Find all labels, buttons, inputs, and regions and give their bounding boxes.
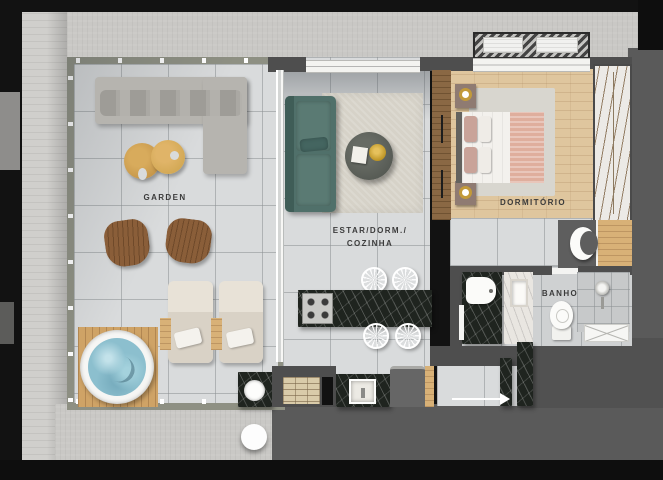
living-window-sill: [306, 60, 420, 73]
garden-glass-partition: [276, 70, 284, 362]
ac-unit: [483, 37, 523, 53]
bed-pillow: [464, 116, 477, 142]
window-mullions-left: [68, 66, 73, 402]
entry-arrow: [452, 398, 504, 400]
bed-pillow: [464, 147, 477, 173]
book: [351, 146, 368, 164]
cabinet-side-panel: [425, 366, 434, 407]
table-lamp: [459, 88, 472, 101]
wall-segment: [268, 57, 306, 72]
door-handle: [441, 170, 443, 198]
bar-stool: [395, 323, 421, 349]
exterior-edge-patch: [0, 302, 14, 344]
bathroom-label: BANHO: [530, 289, 590, 298]
ac-unit: [536, 37, 578, 53]
bedroom-label: DORMITÓRIO: [478, 198, 588, 207]
shower-head: [595, 281, 609, 295]
oven-slot: [322, 377, 333, 405]
entry-arrow-head: [500, 393, 510, 405]
dark-zone-bottom: [272, 404, 663, 462]
cooktop: [302, 293, 333, 324]
kitchen-sink: [349, 379, 376, 404]
living-label-line1: ESTAR/DORM./: [320, 226, 420, 235]
vessel-sink: [570, 227, 596, 260]
entry-marble-wall: [517, 342, 533, 406]
exterior-concrete-wall: [22, 12, 67, 462]
wardrobe-closet: [593, 64, 632, 222]
lounger-side-table: [160, 318, 171, 350]
sofa-cushion: [296, 154, 331, 206]
gold-tray: [369, 144, 386, 161]
round-sink: [244, 380, 265, 401]
sun-lounger: [219, 281, 263, 363]
garden-coffee-table: [151, 140, 185, 174]
living-label-line2: COZINHA: [320, 239, 420, 248]
bathroom-sink: [466, 277, 496, 304]
black-corner-top-right: [638, 0, 663, 50]
table-notch: [138, 168, 147, 180]
toilet: [550, 301, 573, 329]
sofa-cushions: [100, 90, 242, 116]
sofa-backrest: [285, 96, 294, 212]
table-notch: [170, 151, 179, 160]
sun-lounger: [168, 281, 213, 363]
door-handle: [441, 115, 443, 143]
wall-segment: [420, 57, 476, 71]
shower-handle: [601, 297, 604, 309]
bed-pillow: [479, 147, 491, 173]
table-lamp: [459, 186, 472, 199]
bed-blanket: [510, 112, 544, 183]
window-mullions-top: [76, 58, 276, 63]
hot-tub-water: [88, 338, 146, 396]
vanity-wood-cabinet: [596, 220, 632, 268]
bath-mat: [584, 324, 629, 342]
lounger-side-table: [211, 318, 222, 350]
garden-label: GARDEN: [115, 193, 215, 202]
black-border-bottom: [0, 460, 663, 480]
exterior-column: [241, 424, 267, 450]
exterior-edge-patch: [0, 92, 20, 170]
bathroom-door-leaf: [459, 305, 464, 340]
charcoal-grill: [283, 377, 320, 404]
bedroom-window-sill: [473, 58, 590, 72]
shower-niche: [510, 279, 528, 307]
refrigerator: [390, 366, 425, 407]
exterior-pavement-bottom: [55, 404, 272, 462]
bar-stool: [363, 323, 389, 349]
door-threshold: [552, 268, 578, 274]
dark-zone-corridor: [517, 338, 663, 408]
bed-pillow: [479, 116, 491, 142]
floor-plan: GARDEN ESTAR/DORM./ COZINHA DORMITÓRIO B…: [0, 0, 663, 480]
